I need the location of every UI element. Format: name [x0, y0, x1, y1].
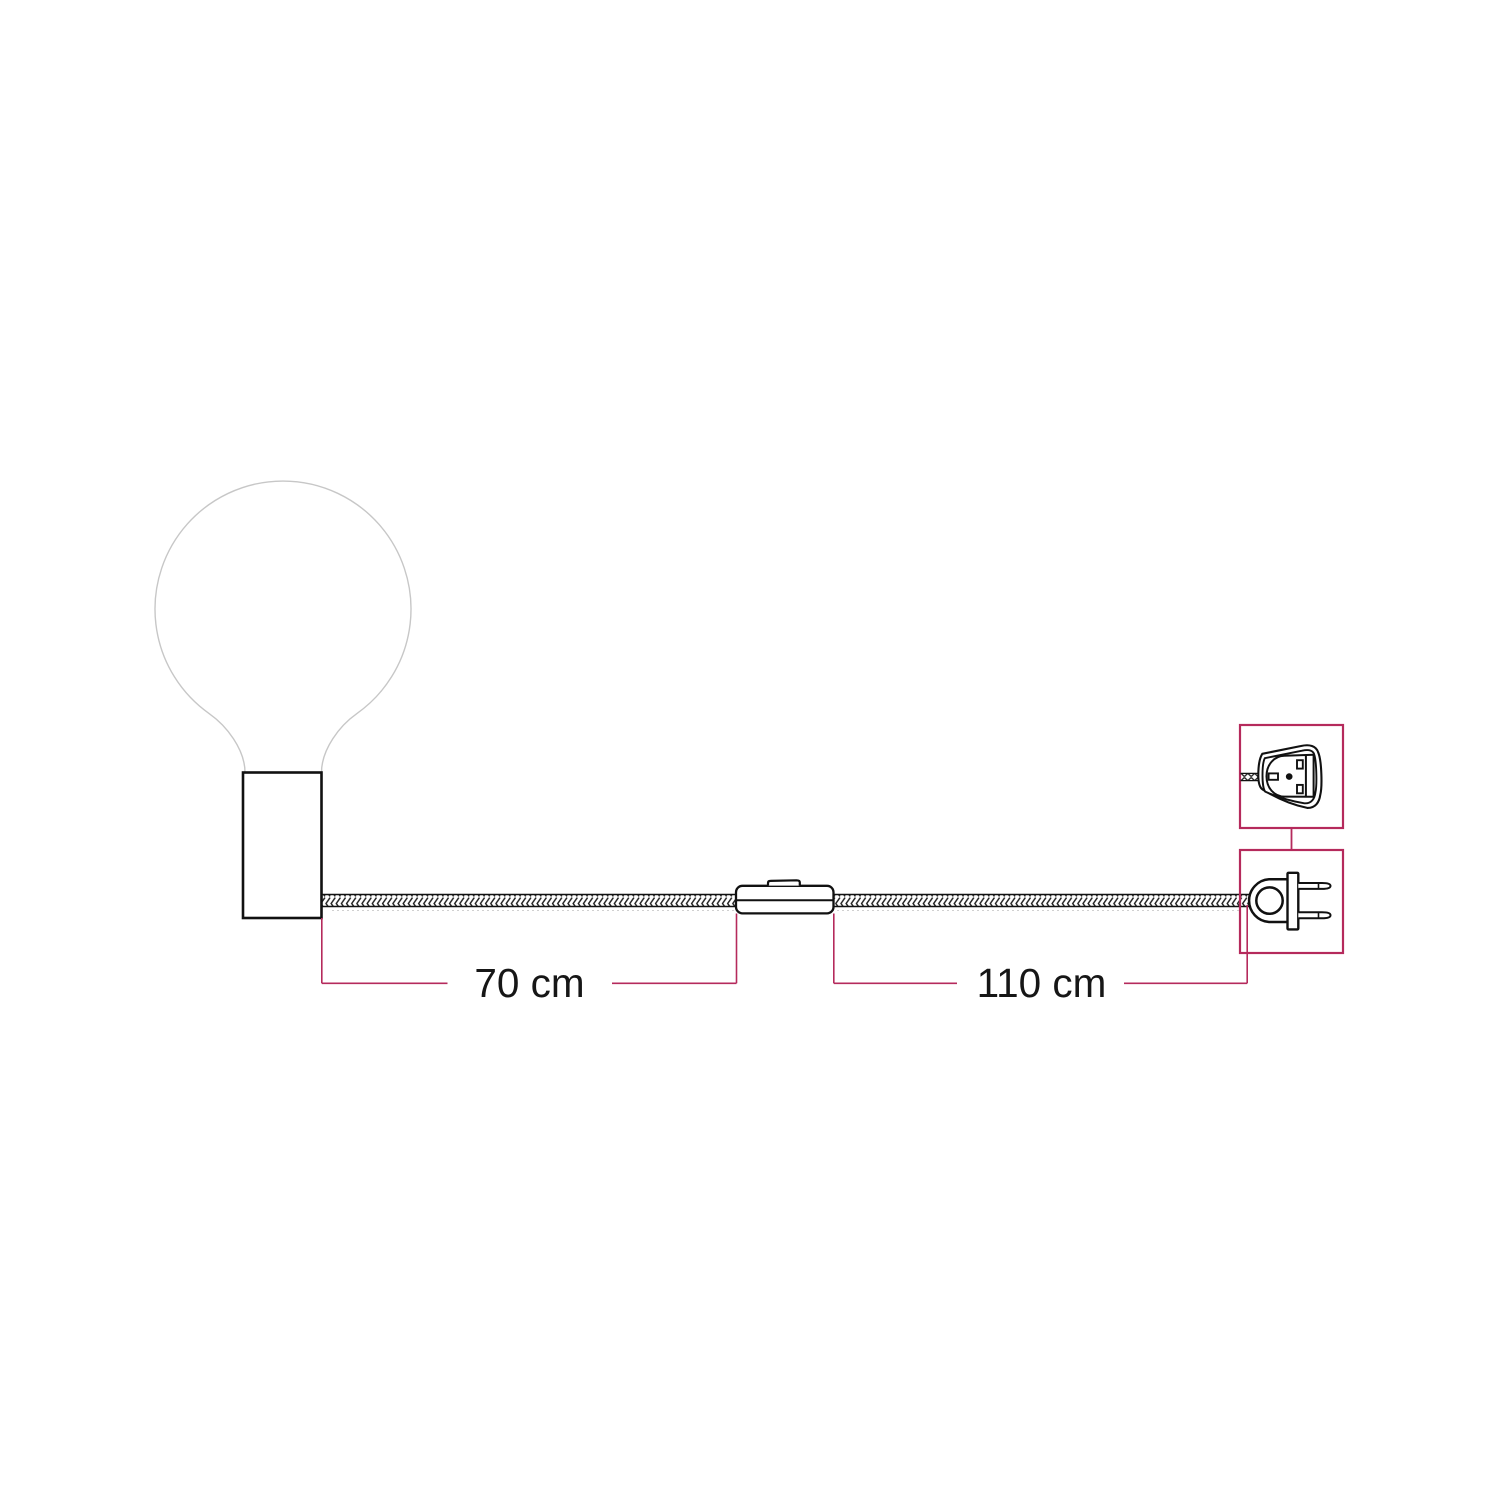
svg-text:70 cm: 70 cm [474, 960, 584, 1006]
svg-text:110 cm: 110 cm [977, 960, 1107, 1006]
